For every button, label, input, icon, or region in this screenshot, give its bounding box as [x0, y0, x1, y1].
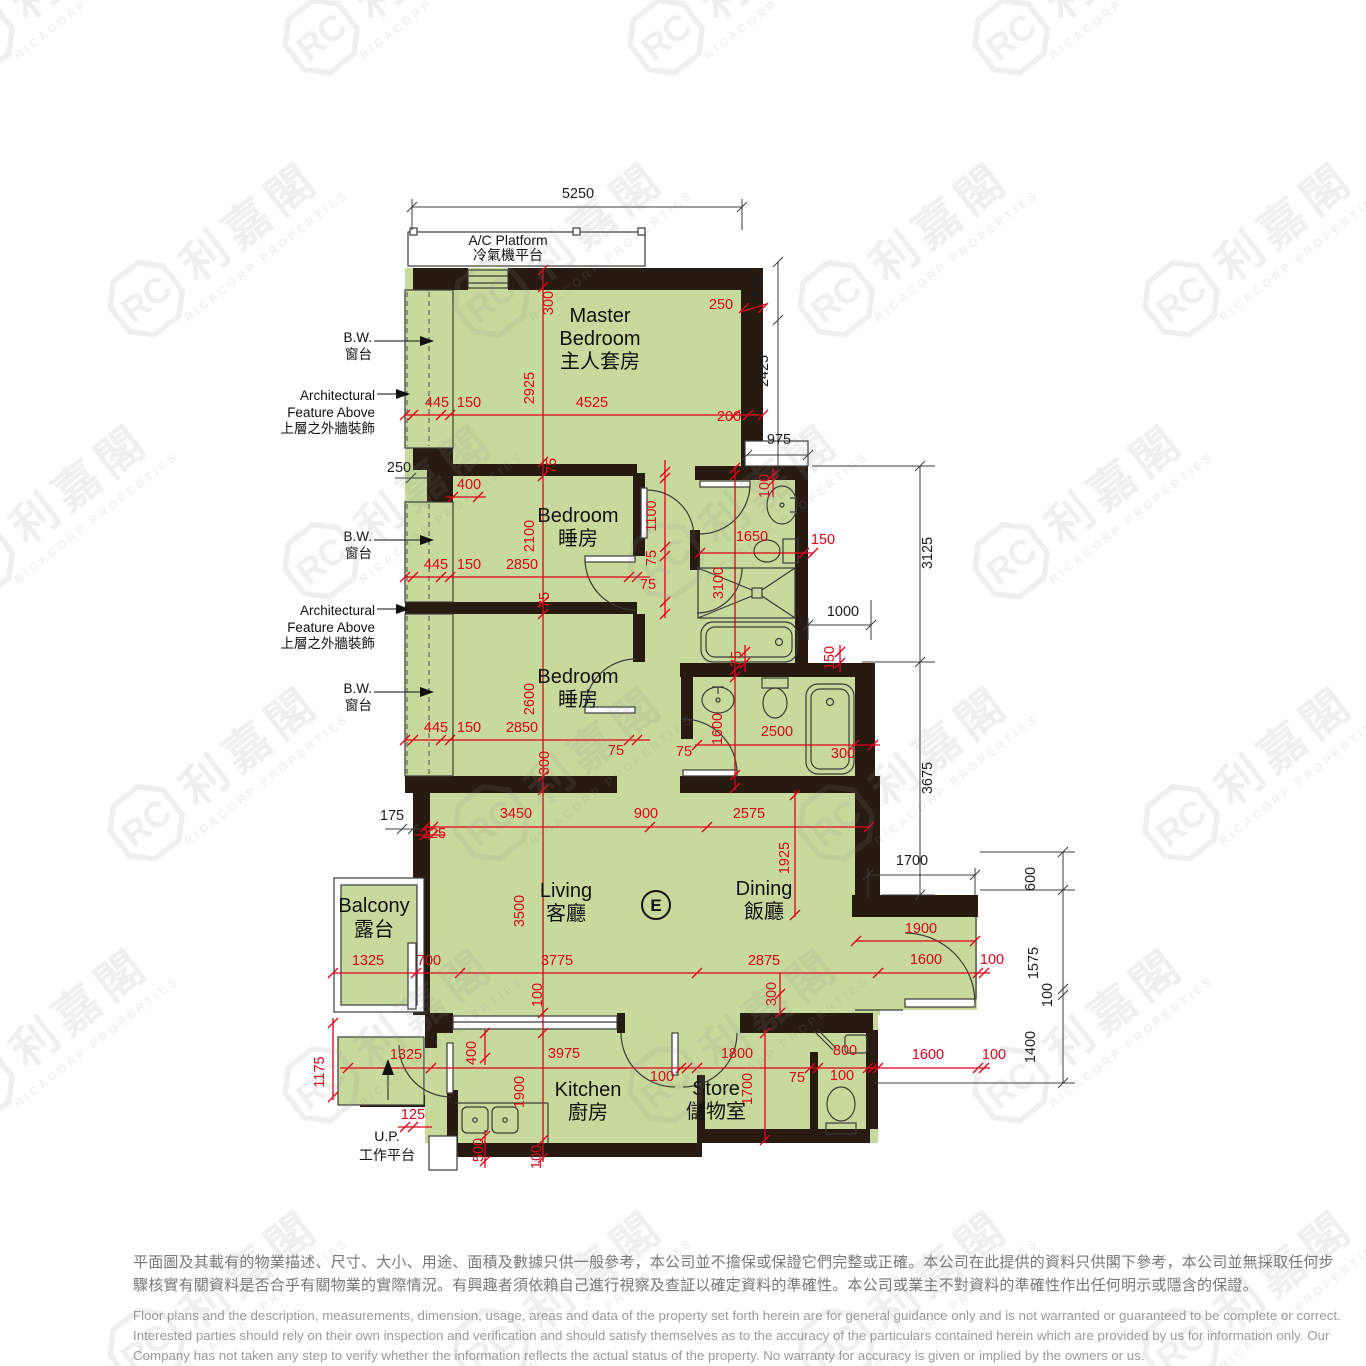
dimension-label: 300	[831, 746, 855, 762]
dimension-label: 2850	[506, 557, 538, 573]
dimension-label: 3775	[541, 953, 573, 969]
annotation-text: 窗台	[222, 546, 372, 563]
master-window	[468, 270, 508, 288]
disclaimer: 平面圖及其載有的物業描述、尺寸、大小、用途、面積及數據只供一般參考，本公司並不擔…	[133, 1251, 1253, 1366]
dimension-label: 175	[380, 808, 404, 824]
dimension-label: 600	[1023, 867, 1039, 891]
annotation-af-2: Architectural Feature Above 上層之外牆裝飾	[225, 603, 375, 653]
dimension-label: 75	[729, 651, 745, 667]
dimension-label: 100	[650, 1069, 674, 1085]
room-label-living: Living	[540, 880, 592, 902]
dimension-label: 200	[717, 409, 741, 425]
disclaimer-en-line: Floor plans and the description, measure…	[133, 1306, 1253, 1326]
dimension-label: 900	[634, 806, 658, 822]
dimension-label: 445	[424, 720, 448, 736]
room-label-balcony: 露台	[354, 918, 394, 941]
dimension-label: 150	[822, 646, 838, 670]
annotation-text: B.W.	[222, 681, 372, 698]
dimension-label: 800	[833, 1043, 857, 1059]
dimension-label: 150	[811, 532, 835, 548]
dimension-label: 1575	[1026, 947, 1042, 979]
dimension-label: 1700	[896, 853, 928, 869]
dimension-label: 1900	[905, 921, 937, 937]
annotation-text: Architectural	[225, 388, 375, 405]
dimension-label: 3975	[548, 1046, 580, 1062]
dimension-label: 100	[529, 1145, 545, 1169]
dimension-label: 100	[1040, 983, 1056, 1007]
unit-mark: E	[650, 896, 661, 915]
room-label-master-bedroom: Master	[569, 305, 630, 327]
dimension-label: 3675	[920, 762, 936, 794]
dimension-label: 100	[757, 474, 773, 498]
annotation-text: 窗台	[222, 347, 372, 364]
annotation-bw-2: B.W. 窗台	[222, 529, 372, 562]
annotation-bw-3: B.W. 窗台	[222, 681, 372, 714]
dimension-label: 75	[608, 743, 624, 759]
dimension-label: 1400	[1023, 1031, 1039, 1063]
dimension-label: 445	[424, 557, 448, 573]
dimension-label: 975	[767, 432, 791, 448]
dimension-label: 1000	[827, 604, 859, 620]
annotation-text: Feature Above	[225, 620, 375, 637]
dimension-label: 775	[750, 275, 766, 299]
annotation-bw-1: B.W. 窗台	[222, 330, 372, 363]
annotation-text: Architectural	[225, 603, 375, 620]
dimension-label: 150	[457, 395, 481, 411]
dimension-label: 2600	[522, 683, 538, 715]
dimension-label: 400	[464, 1041, 480, 1065]
room-label-bedroom-2: Bedroom	[537, 666, 618, 688]
room-label-bedroom-1: 睡房	[558, 527, 598, 550]
dimension-label: 2850	[506, 720, 538, 736]
dimension-label: 125	[401, 1107, 425, 1123]
annotation-text: B.W.	[222, 330, 372, 347]
dimension-label: 1175	[312, 1056, 328, 1087]
dimension-label: 100	[982, 1047, 1006, 1063]
dimension-label: 300	[764, 982, 780, 1006]
disclaimer-en-line: Company has not taken any step to verify…	[133, 1346, 1253, 1366]
dimension-label: 300	[541, 291, 557, 315]
room-label-ac-platform: 冷氣機平台	[473, 247, 543, 263]
dimension-label: 1800	[721, 1046, 753, 1062]
dimension-label: 250	[709, 297, 733, 313]
dimension-label: 2425	[756, 355, 772, 387]
dimension-label: 1600	[710, 713, 726, 745]
dimension-label: 75	[544, 458, 560, 474]
dimension-label: 1100	[644, 500, 660, 531]
dimension-label: 1600	[910, 952, 942, 968]
dimension-label: 1325	[352, 953, 384, 969]
room-label-dining: Dining	[736, 878, 793, 900]
room-label-dining: 飯廳	[744, 900, 784, 923]
dimension-label: 75	[676, 744, 692, 760]
annotation-text: 上層之外牆裝飾	[225, 636, 375, 653]
dimension-label: 3100	[711, 567, 727, 599]
dimension-label: 150	[457, 557, 481, 573]
dimension-label: 1650	[736, 529, 768, 545]
dimension-label: 4525	[576, 395, 608, 411]
dimension-label: 2575	[733, 806, 765, 822]
disclaimer-en-line: Interested parties should rely on their …	[133, 1326, 1253, 1346]
room-label-master-bedroom: Bedroom	[559, 328, 640, 350]
dimension-label: 3450	[500, 806, 532, 822]
dimension-label: 150	[457, 720, 481, 736]
dimension-label: 445	[425, 395, 449, 411]
dimension-label: 500	[471, 1138, 487, 1162]
dimension-label: 2875	[748, 953, 780, 969]
floor-plan-page: 3002925452544515025020075400210011007544…	[0, 0, 1366, 1366]
room-label-kitchen: 廚房	[568, 1100, 608, 1124]
disclaimer-zh-line: 驟核實有關資料是否合乎有關物業的實際情況。有興趣者須依賴自己進行視察及查証以確定…	[133, 1274, 1253, 1297]
room-label-kitchen: Kitchen	[555, 1079, 622, 1101]
room-label-living: 客廳	[546, 902, 586, 925]
duct-box	[429, 1136, 457, 1170]
dimension-label: 3500	[512, 895, 528, 927]
dimension-label: 400	[457, 477, 481, 493]
dimension-label: 3125	[920, 537, 936, 569]
floor-plan-canvas: 3002925452544515025020075400210011007544…	[0, 0, 1366, 1366]
dimension-label: 2925	[522, 372, 538, 404]
dimension-label: 75	[640, 577, 656, 593]
annotation-text: 窗台	[222, 698, 372, 715]
room-label-bedroom-1: Bedroom	[537, 505, 618, 527]
dimension-label: 100	[530, 983, 546, 1007]
disclaimer-zh-line: 平面圖及其載有的物業描述、尺寸、大小、用途、面積及數據只供一般參考，本公司並不擔…	[133, 1251, 1253, 1274]
dimension-label: 1600	[912, 1047, 944, 1063]
dimension-label: 75	[644, 550, 660, 566]
annotation-af-1: Architectural Feature Above 上層之外牆裝飾	[225, 388, 375, 438]
bay-window-strips	[405, 290, 453, 776]
room-label-ac-platform: A/C Platform	[468, 232, 547, 248]
annotation-text: 上層之外牆裝飾	[225, 421, 375, 438]
room-label-store: 儲物室	[686, 1100, 746, 1123]
room-label-bedroom-2: 睡房	[558, 688, 598, 711]
room-label-up: 工作平台	[359, 1147, 415, 1163]
dimension-label: 2100	[522, 520, 538, 552]
dimension-label: 100	[980, 952, 1004, 968]
dimension-label: 75	[537, 592, 553, 608]
dimension-label: 125	[422, 826, 446, 842]
dimension-label: 1925	[777, 842, 793, 874]
dimension-label: 75	[789, 1070, 805, 1086]
room-label-master-bedroom: 主人套房	[560, 350, 640, 373]
room-label-balcony: Balcony	[338, 895, 409, 917]
dimension-label: 100	[830, 1068, 854, 1084]
annotation-text: B.W.	[222, 529, 372, 546]
dimension-label: 250	[387, 460, 411, 476]
room-label-store: Store	[692, 1078, 740, 1100]
annotation-text: Feature Above	[225, 405, 375, 422]
balcony-divider	[408, 943, 416, 1009]
dimension-label: 5250	[562, 186, 594, 202]
dimension-label: 1900	[512, 1076, 528, 1108]
room-label-up: U.P.	[374, 1128, 399, 1144]
dimension-label: 1325	[390, 1047, 422, 1063]
dimension-label: 300	[537, 751, 553, 775]
dimension-label: 2500	[761, 724, 793, 740]
dimension-label: 700	[417, 953, 441, 969]
